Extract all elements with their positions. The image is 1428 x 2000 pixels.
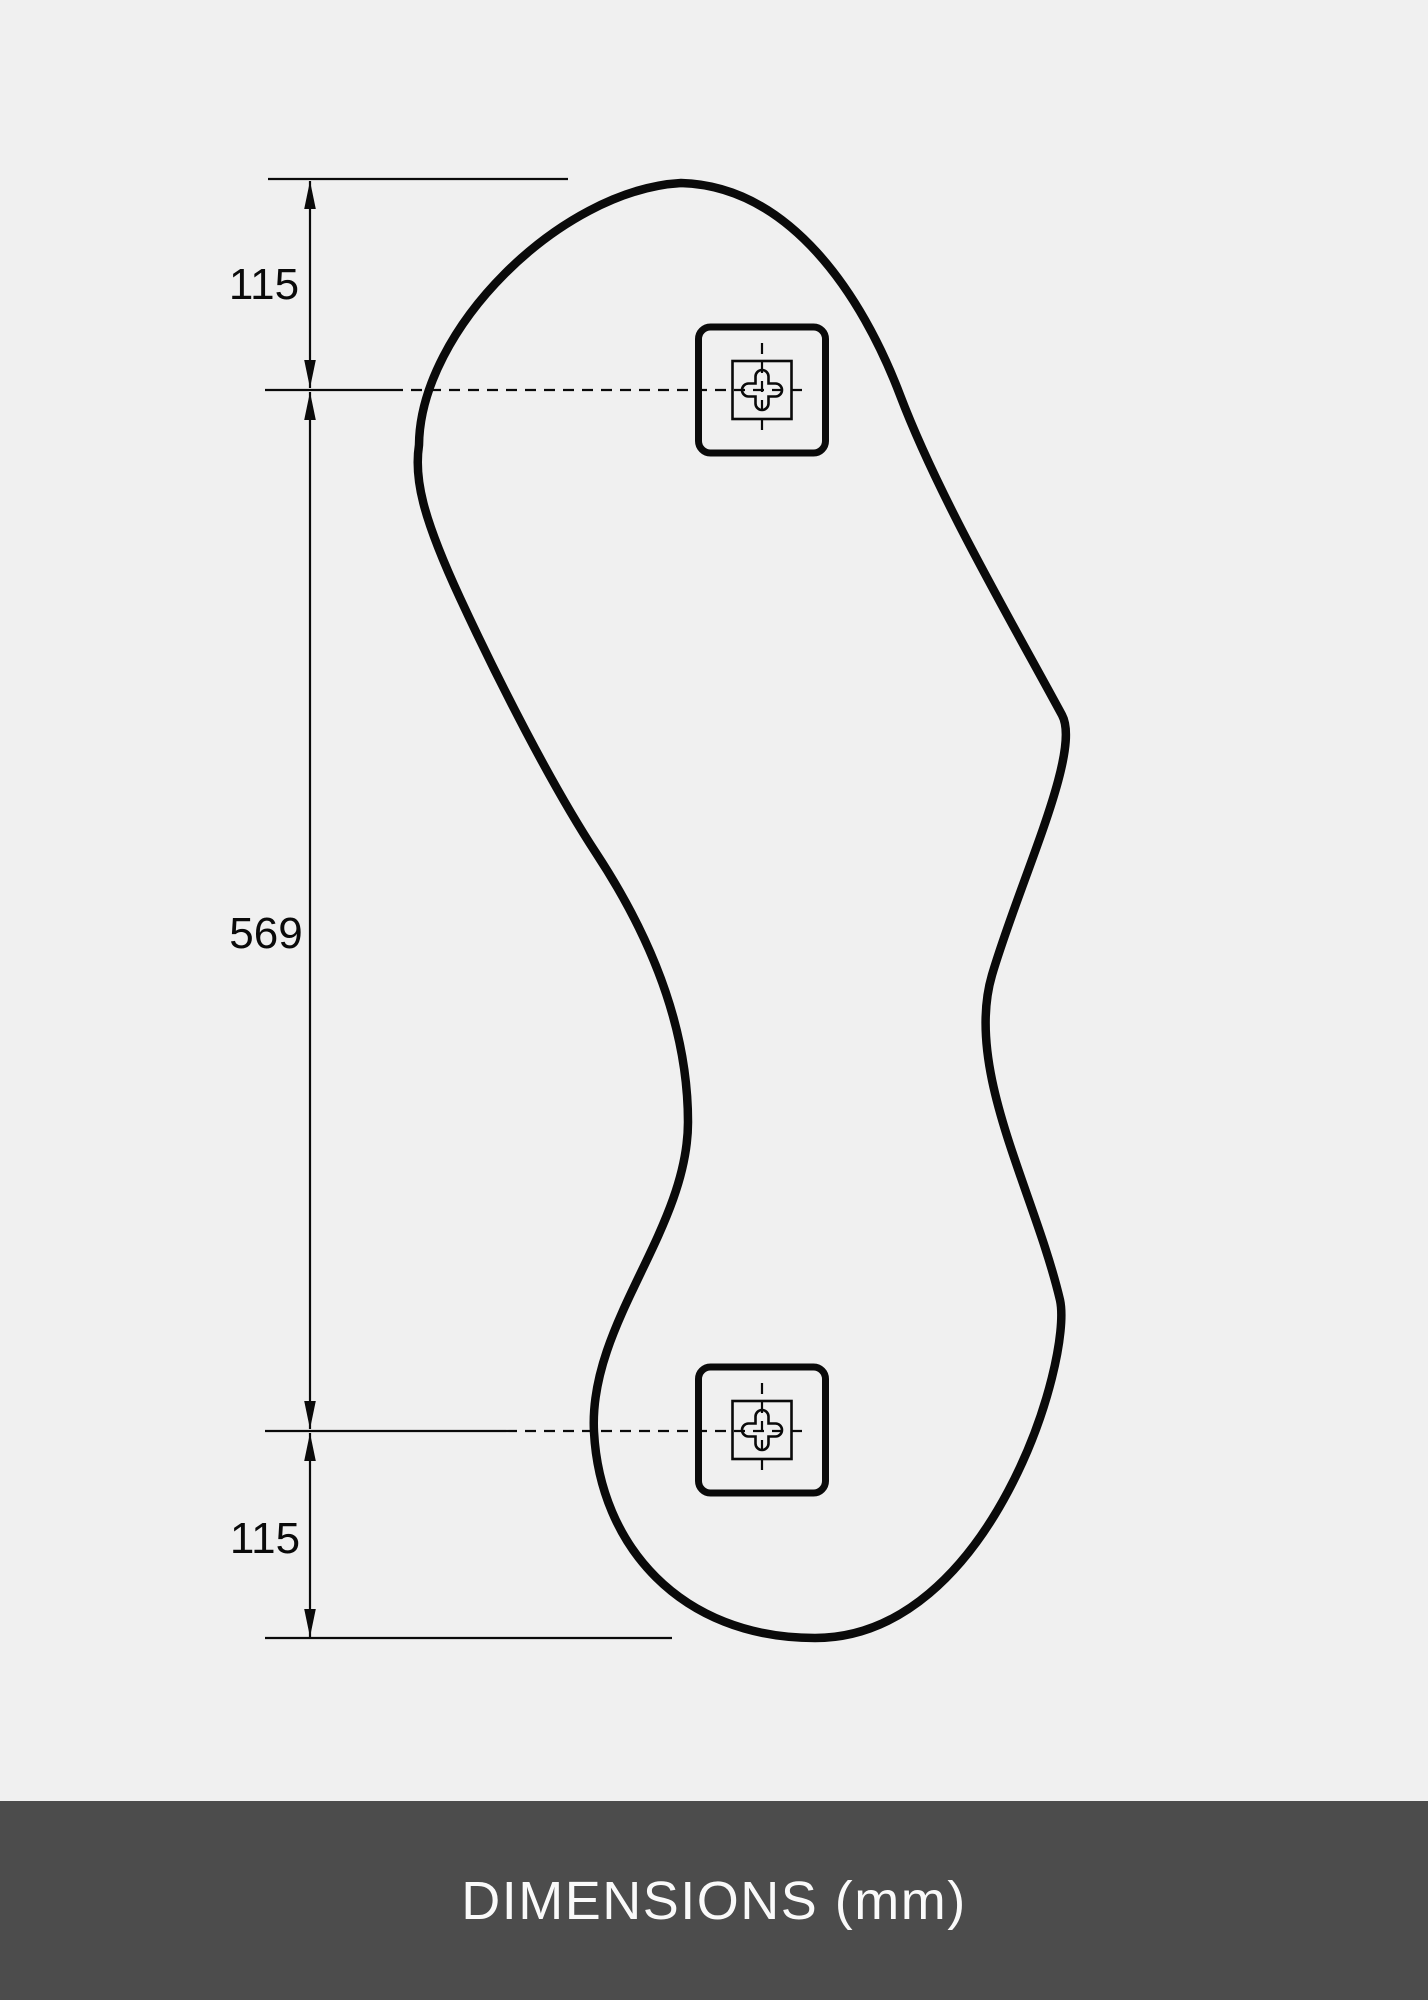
footer-bar: DIMENSIONS (mm) [0,1801,1428,2000]
arrow-down-icon [304,1609,316,1637]
arrow-up-icon [304,1433,316,1461]
dimension-diagram-page: 115 569 115 DIMENSIONS (mm) [0,0,1428,2000]
drawing-area: 115 569 115 [0,0,1428,1801]
arrow-down-icon [304,360,316,388]
dimension-value-middle: 569 [229,909,302,958]
mirror-outline-shape [418,183,1066,1638]
dimension-value-bottom: 115 [230,1514,300,1563]
arrow-up-icon [304,181,316,209]
arrow-down-icon [304,1401,316,1429]
arrow-up-icon [304,392,316,420]
dimension-value-top: 115 [229,260,299,309]
dimension-drawing-svg: 115 569 115 [0,0,1428,1801]
footer-caption: DIMENSIONS (mm) [461,1870,966,1932]
